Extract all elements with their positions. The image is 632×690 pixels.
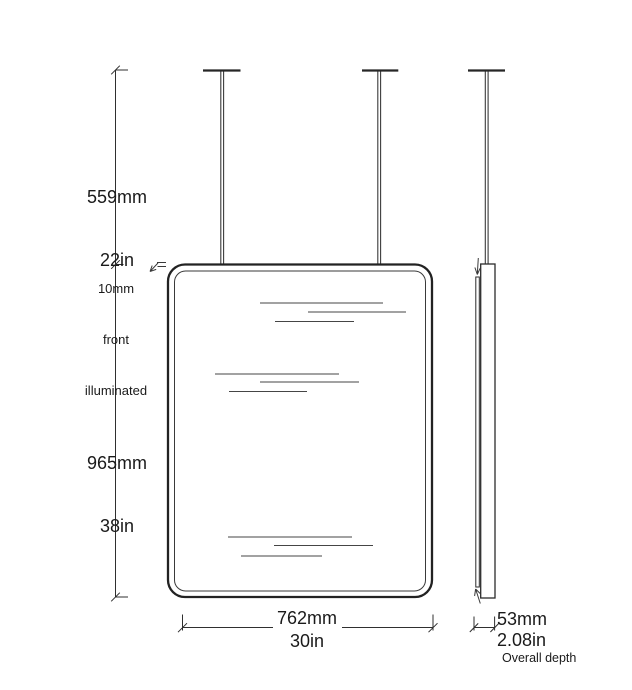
side-view [468, 71, 505, 604]
depth-imperial: 2.08in [497, 630, 546, 650]
front-view [168, 71, 432, 598]
hanging-rod-right [362, 71, 398, 265]
mirror-inner-frame [175, 271, 426, 591]
drawing-canvas: 559mm 22in 10mm front illuminated 965mm … [0, 0, 632, 690]
leader-arrow-side-bottom [475, 589, 481, 604]
front-note-line3: illuminated [51, 382, 181, 399]
rod-drop-metric: 559mm [52, 187, 182, 208]
mirror-height-imperial: 38in [52, 516, 182, 537]
depth-note: Overall depth [502, 651, 576, 665]
mirror-height-metric: 965mm [52, 453, 182, 474]
front-note-line2: front [51, 331, 181, 348]
dimension-label-mirror-height: 965mm 38in [52, 411, 182, 579]
mirror-reflection-lines [215, 303, 406, 556]
hanging-rod-left [203, 71, 241, 265]
mirror-width-metric: 762mm [242, 608, 372, 628]
depth-metric: 53mm [497, 609, 547, 629]
hanging-rod-side [468, 71, 505, 265]
illuminated-front-strip [476, 277, 480, 587]
leader-arrow-side-top [475, 258, 480, 275]
front-illuminated-note: 10mm front illuminated [51, 246, 181, 433]
mirror-body-profile [481, 264, 495, 598]
dimension-depth [470, 617, 499, 633]
front-note-line1: 10mm [51, 280, 181, 297]
mirror-outer-frame [168, 265, 432, 598]
mirror-width-imperial: 30in [242, 631, 372, 651]
